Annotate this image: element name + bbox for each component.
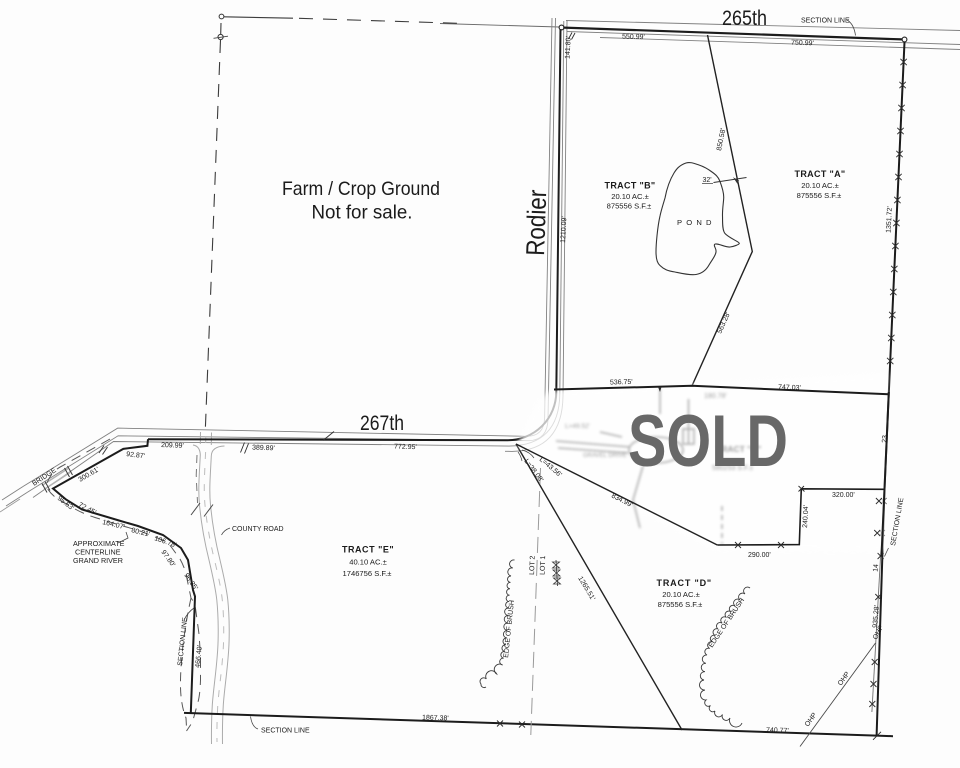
- svg-text:GRAND RIVER: GRAND RIVER: [73, 556, 123, 565]
- svg-text:20.10 AC.±: 20.10 AC.±: [611, 192, 649, 201]
- svg-text:L=49.52': L=49.52': [565, 423, 590, 430]
- svg-text:267th: 267th: [360, 412, 404, 435]
- svg-text:1210.09': 1210.09': [560, 216, 568, 243]
- svg-text:23: 23: [882, 435, 889, 443]
- svg-text:COUNTY ROAD: COUNTY ROAD: [232, 526, 284, 533]
- svg-text:POND: POND: [677, 218, 716, 227]
- svg-text:TRACT "B": TRACT "B": [605, 181, 656, 191]
- svg-text:875556 S.F.±: 875556 S.F.±: [797, 191, 842, 200]
- svg-text:141.80': 141.80': [565, 36, 573, 59]
- svg-text:180.78': 180.78': [704, 393, 727, 400]
- svg-text:1867.38': 1867.38': [422, 715, 449, 723]
- svg-text:TRACT "E": TRACT "E": [342, 545, 394, 555]
- svg-text:20.10 AC.±: 20.10 AC.±: [801, 181, 839, 190]
- svg-text:GRAVEL DRIVE: GRAVEL DRIVE: [583, 453, 627, 459]
- svg-text:40.10 AC.±: 40.10 AC.±: [349, 558, 387, 567]
- svg-text:SECTION LINE: SECTION LINE: [261, 728, 310, 735]
- svg-text:Rodier: Rodier: [520, 189, 552, 256]
- svg-text:290.00': 290.00': [748, 552, 771, 559]
- svg-text:320.00': 320.00': [832, 492, 855, 499]
- svg-text:Farm / Crop Ground: Farm / Crop Ground: [282, 178, 440, 200]
- svg-text:Not for sale.: Not for sale.: [312, 202, 413, 224]
- svg-text:265th: 265th: [722, 7, 767, 30]
- svg-text:772.95': 772.95': [394, 444, 417, 452]
- svg-text:LOT 1: LOT 1: [540, 555, 548, 575]
- svg-text:550.99': 550.99': [622, 34, 645, 42]
- svg-text:1746756 S.F.±: 1746756 S.F.±: [343, 569, 392, 578]
- svg-text:SECTION LINE: SECTION LINE: [801, 18, 850, 25]
- svg-text:SOLD: SOLD: [628, 401, 788, 482]
- svg-text:1351.72': 1351.72': [886, 206, 894, 233]
- svg-text:LOT 2: LOT 2: [529, 555, 537, 575]
- svg-text:14: 14: [873, 564, 881, 572]
- svg-text:875556 S.F.±: 875556 S.F.±: [607, 202, 652, 211]
- svg-text:536.75': 536.75': [610, 379, 633, 387]
- svg-text:389.89': 389.89': [252, 445, 275, 453]
- svg-text:747.03': 747.03': [778, 384, 801, 392]
- svg-text:TRACT "A": TRACT "A": [795, 169, 846, 179]
- svg-text:32': 32': [703, 177, 712, 184]
- svg-text:TRACT "D": TRACT "D": [657, 578, 712, 588]
- svg-text:750.99': 750.99': [791, 40, 814, 48]
- svg-text:740.77': 740.77': [766, 727, 789, 735]
- svg-text:240.04': 240.04': [802, 505, 810, 528]
- svg-text:875556 S.F.±: 875556 S.F.±: [658, 600, 703, 609]
- svg-text:209.99': 209.99': [161, 442, 184, 450]
- svg-text:20.10 AC.±: 20.10 AC.±: [662, 590, 700, 599]
